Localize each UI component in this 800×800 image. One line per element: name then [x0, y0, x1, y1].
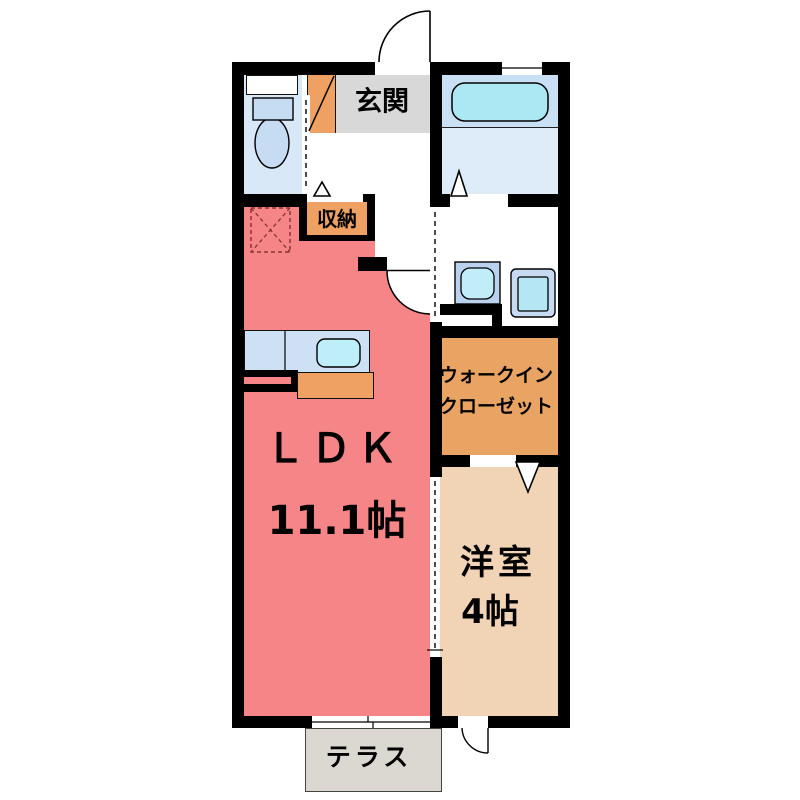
- wall: [430, 716, 458, 728]
- kitchen-counter: [244, 330, 370, 374]
- wall: [516, 455, 558, 467]
- wall: [492, 304, 502, 328]
- wall: [558, 62, 570, 728]
- kitchen-stove-slit: [244, 377, 291, 384]
- wall: [442, 194, 450, 207]
- terrace-window: [312, 716, 430, 728]
- wall: [232, 62, 375, 75]
- bedroom-label: 洋室: [460, 546, 536, 580]
- wall: [430, 467, 442, 477]
- hallway: [375, 195, 430, 260]
- storage-label: 収納: [317, 209, 357, 229]
- storage-door-gap: [307, 194, 363, 202]
- entrance-door-swing: [379, 11, 430, 62]
- ldk-label: ＬＤＫ: [265, 429, 403, 469]
- wall: [430, 455, 470, 467]
- genkan-label: 玄関: [355, 89, 409, 116]
- wall: [430, 657, 442, 716]
- wall: [232, 716, 312, 728]
- entrance-door-gap: [375, 62, 430, 75]
- wic-label-line2: クローゼット: [439, 398, 553, 417]
- ldk-size-label: 11.1帖: [268, 501, 407, 541]
- toilet-window: [246, 75, 298, 95]
- floor-plan: 玄関 収納 ＬＤＫ 11.1帖 ウォークイン クローゼット 洋室 4帖 テラス: [0, 0, 800, 800]
- bedroom-sliding-door: [430, 477, 440, 657]
- terrace-label: テラス: [326, 745, 413, 770]
- wall: [430, 322, 442, 467]
- toilet-door-track: [302, 95, 310, 194]
- ldk-door-leaf: [387, 259, 430, 271]
- hallway: [308, 133, 430, 195]
- bedroom-exterior-door-swing: [462, 728, 488, 753]
- wall: [488, 716, 570, 728]
- wall: [508, 194, 558, 207]
- bathtub-deck: [442, 75, 558, 128]
- bathroom-window: [502, 62, 542, 75]
- shoe-cabinet: [307, 73, 337, 135]
- washroom-sliding-door: [430, 207, 440, 322]
- bedroom-exterior-door-gap: [458, 716, 488, 728]
- wic-label-line1: ウォークイン: [439, 367, 553, 386]
- wall: [358, 257, 387, 271]
- kitchen-counter-base: [297, 372, 374, 399]
- wall: [430, 62, 442, 207]
- bathroom-door-gap: [450, 194, 508, 207]
- wall: [232, 62, 244, 728]
- bedroom-size-label: 4帖: [461, 595, 519, 629]
